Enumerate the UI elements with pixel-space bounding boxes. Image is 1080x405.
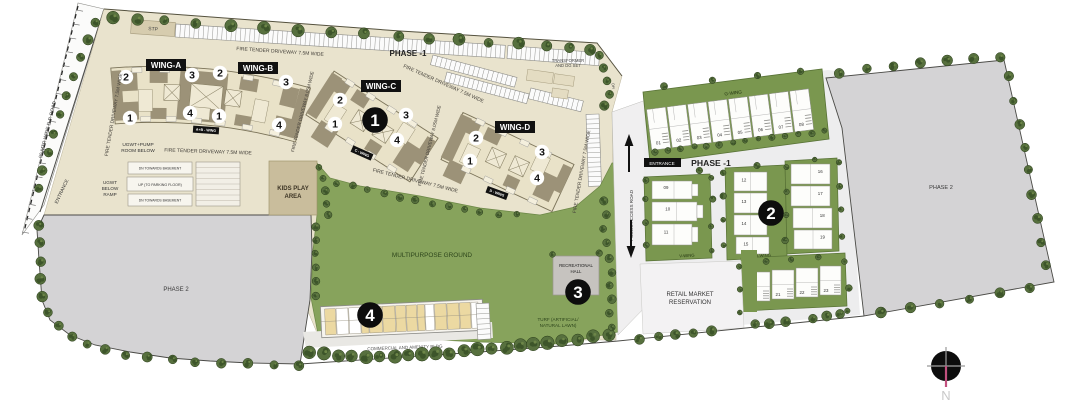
svg-text:UGWT: UGWT bbox=[103, 180, 117, 185]
svg-text:3: 3 bbox=[283, 77, 289, 89]
svg-text:N: N bbox=[941, 388, 950, 403]
svg-text:PHASE 2: PHASE 2 bbox=[163, 287, 189, 293]
svg-text:3: 3 bbox=[189, 70, 195, 82]
svg-text:ENTRANCE: ENTRANCE bbox=[649, 161, 674, 166]
svg-text:AND DG SET: AND DG SET bbox=[555, 63, 581, 68]
svg-text:PHASE -1: PHASE -1 bbox=[691, 158, 731, 168]
svg-text:1: 1 bbox=[216, 111, 222, 123]
svg-text:09: 09 bbox=[664, 185, 669, 190]
svg-text:MULTIPURPOSE GROUND: MULTIPURPOSE GROUND bbox=[392, 252, 473, 259]
svg-text:RECREATIONAL: RECREATIONAL bbox=[559, 263, 593, 268]
svg-text:PHASE -1: PHASE -1 bbox=[390, 49, 427, 58]
svg-text:2: 2 bbox=[123, 72, 129, 84]
svg-text:19: 19 bbox=[820, 235, 825, 240]
svg-text:PHASE 2: PHASE 2 bbox=[929, 185, 953, 191]
svg-text:ROOM BELOW: ROOM BELOW bbox=[121, 148, 155, 154]
svg-text:1: 1 bbox=[332, 119, 338, 131]
svg-text:13: 13 bbox=[741, 199, 746, 204]
svg-text:1: 1 bbox=[127, 113, 133, 125]
svg-text:TURF (ARTIFICIAL/: TURF (ARTIFICIAL/ bbox=[537, 317, 579, 322]
svg-text:10: 10 bbox=[665, 207, 670, 212]
svg-text:2: 2 bbox=[217, 68, 223, 80]
svg-text:3: 3 bbox=[573, 283, 582, 302]
svg-text:2: 2 bbox=[473, 133, 479, 145]
svg-text:22: 22 bbox=[800, 290, 805, 295]
svg-text:V-WING: V-WING bbox=[679, 253, 695, 259]
svg-text:STP: STP bbox=[148, 26, 159, 33]
svg-text:4: 4 bbox=[187, 108, 193, 120]
svg-text:1: 1 bbox=[370, 111, 379, 130]
svg-text:UP (TO PARKING FLOOR): UP (TO PARKING FLOOR) bbox=[138, 183, 182, 187]
svg-text:BELOW: BELOW bbox=[102, 186, 119, 191]
svg-text:AREA: AREA bbox=[284, 194, 302, 200]
svg-text:WING-C: WING-C bbox=[366, 82, 396, 91]
svg-text:21: 21 bbox=[776, 292, 781, 297]
svg-text:HALL: HALL bbox=[571, 269, 583, 274]
svg-text:15: 15 bbox=[743, 242, 748, 247]
svg-text:KIDS PLAY: KIDS PLAY bbox=[277, 186, 308, 192]
svg-text:DN TOWARDS BASEMENT: DN TOWARDS BASEMENT bbox=[139, 167, 182, 171]
svg-text:4: 4 bbox=[534, 173, 540, 185]
svg-text:4: 4 bbox=[394, 135, 400, 147]
svg-text:4: 4 bbox=[276, 120, 282, 132]
svg-text:3: 3 bbox=[403, 110, 409, 122]
svg-text:11: 11 bbox=[664, 229, 669, 234]
svg-text:12: 12 bbox=[741, 178, 746, 183]
svg-text:14: 14 bbox=[741, 221, 746, 226]
svg-text:WING-B: WING-B bbox=[243, 64, 273, 73]
svg-text:RESERVATION: RESERVATION bbox=[669, 300, 711, 306]
svg-text:18: 18 bbox=[820, 213, 825, 218]
svg-text:DN TOWARDS BASEMENT: DN TOWARDS BASEMENT bbox=[139, 199, 182, 203]
svg-text:WING-A: WING-A bbox=[151, 61, 181, 70]
svg-text:4: 4 bbox=[365, 306, 375, 325]
svg-text:RAMP: RAMP bbox=[103, 192, 116, 197]
svg-text:3: 3 bbox=[539, 147, 545, 159]
svg-text:RETAIL MARKET: RETAIL MARKET bbox=[666, 292, 713, 298]
svg-text:UGWT+PUMP: UGWT+PUMP bbox=[122, 142, 153, 148]
svg-text:16: 16 bbox=[818, 169, 823, 174]
svg-text:2: 2 bbox=[337, 95, 343, 107]
svg-text:2: 2 bbox=[766, 204, 775, 223]
svg-text:17: 17 bbox=[818, 191, 823, 196]
svg-text:WING-D: WING-D bbox=[500, 123, 530, 132]
svg-text:23: 23 bbox=[824, 288, 829, 293]
svg-text:1: 1 bbox=[467, 156, 473, 168]
svg-text:NATURAL LAWN): NATURAL LAWN) bbox=[540, 323, 577, 328]
